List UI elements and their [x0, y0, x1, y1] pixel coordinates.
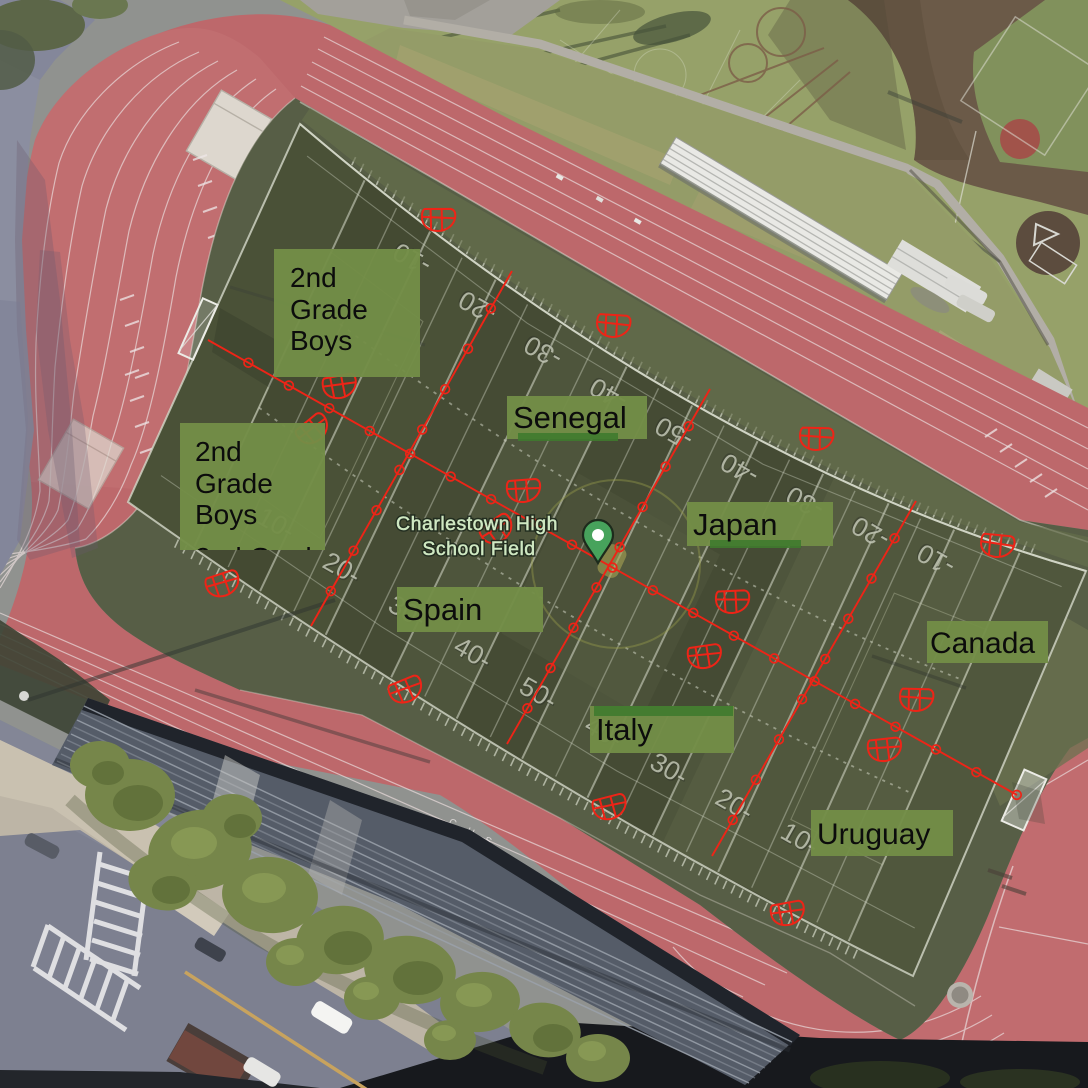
- svg-text:Charlestown High: Charlestown High: [396, 513, 558, 535]
- svg-text:Uruguay: Uruguay: [817, 818, 930, 851]
- svg-text:Grade: Grade: [290, 294, 368, 325]
- svg-text:Boys: Boys: [290, 325, 352, 356]
- svg-text:Boys: Boys: [195, 499, 257, 530]
- svg-text:Senegal: Senegal: [513, 400, 627, 435]
- svg-text:Grade: Grade: [195, 468, 273, 499]
- svg-text:2nd: 2nd: [195, 436, 242, 467]
- svg-text:2nd: 2nd: [290, 262, 337, 293]
- svg-text:Spain: Spain: [403, 592, 482, 627]
- svg-text:School Field: School Field: [422, 538, 535, 560]
- svg-text:Italy: Italy: [596, 712, 653, 747]
- svg-text:Japan: Japan: [693, 507, 777, 542]
- svg-text:Canada: Canada: [930, 627, 1035, 660]
